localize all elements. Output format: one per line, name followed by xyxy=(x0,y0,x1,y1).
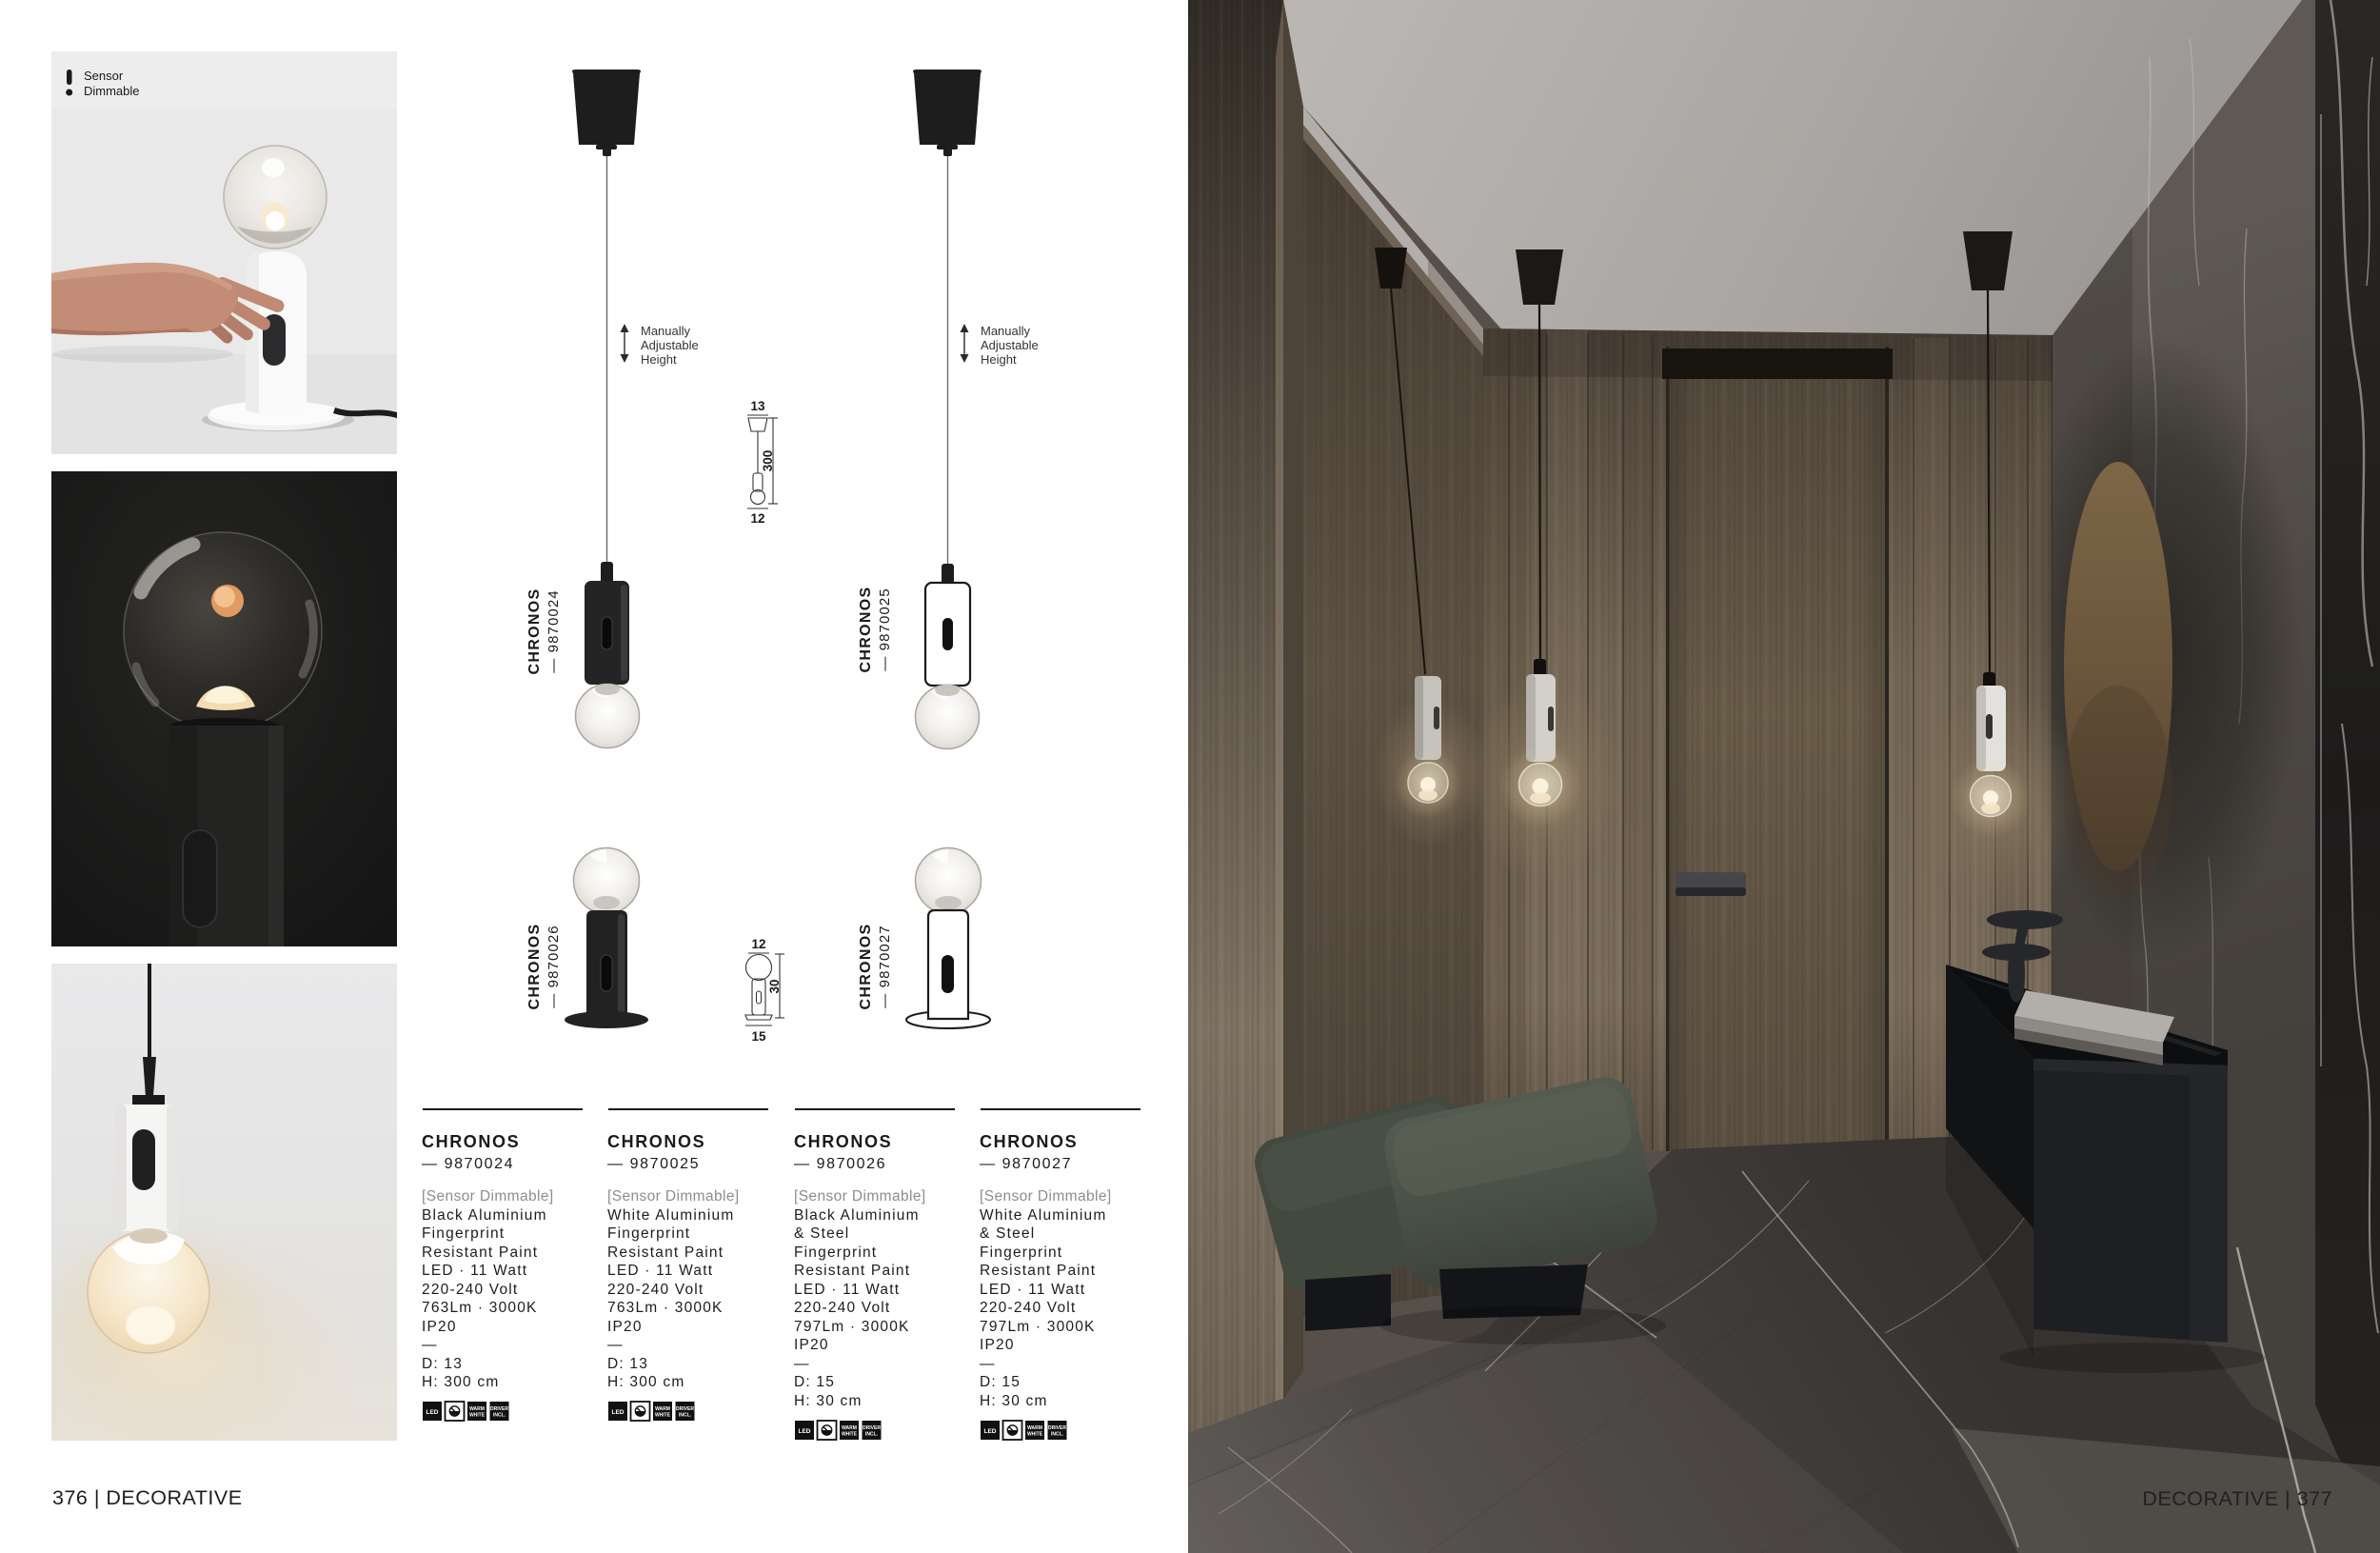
svg-text:White Aluminium: White Aluminium xyxy=(980,1207,1106,1224)
svg-text:WHITE: WHITE xyxy=(1027,1432,1043,1438)
svg-text:—: — xyxy=(422,1337,438,1353)
svg-text:INCL.: INCL. xyxy=(493,1413,506,1419)
svg-text:CHRONOS: CHRONOS xyxy=(526,924,543,1010)
svg-text:DECORATIVE | 377: DECORATIVE | 377 xyxy=(2142,1487,2332,1510)
svg-text:DRIVER: DRIVER xyxy=(490,1406,508,1412)
svg-text:Manually: Manually xyxy=(641,324,691,338)
svg-text:H: 300 cm: H: 300 cm xyxy=(607,1374,684,1390)
svg-text:Manually: Manually xyxy=(981,324,1031,338)
svg-text:LED · 11 Watt: LED · 11 Watt xyxy=(794,1282,900,1298)
svg-text:12: 12 xyxy=(750,511,764,526)
svg-text:— 9870024: — 9870024 xyxy=(545,589,562,672)
svg-text:CHRONOS: CHRONOS xyxy=(607,1132,705,1151)
svg-text:CHRONOS: CHRONOS xyxy=(794,1132,892,1151)
svg-text:13: 13 xyxy=(750,399,765,413)
svg-text:30: 30 xyxy=(767,979,782,993)
svg-text:H: 300 cm: H: 300 cm xyxy=(422,1374,499,1390)
svg-text:— 9870027: — 9870027 xyxy=(877,925,893,1007)
svg-text:— 9870025: — 9870025 xyxy=(607,1156,700,1172)
svg-text:White Aluminium: White Aluminium xyxy=(607,1207,734,1224)
svg-text:H: 30 cm: H: 30 cm xyxy=(980,1393,1048,1409)
svg-text:Resistant Paint: Resistant Paint xyxy=(607,1244,724,1261)
svg-text:& Steel: & Steel xyxy=(794,1225,849,1242)
svg-text:DRIVER: DRIVER xyxy=(863,1425,881,1431)
svg-text:Adjustable: Adjustable xyxy=(641,338,699,352)
svg-text:LED · 11 Watt: LED · 11 Watt xyxy=(980,1282,1085,1298)
svg-text:IP20: IP20 xyxy=(980,1337,1015,1353)
svg-text:Resistant Paint: Resistant Paint xyxy=(422,1244,538,1261)
svg-text:Height: Height xyxy=(981,352,1017,367)
svg-text:WARM: WARM xyxy=(842,1425,857,1431)
svg-text:LED: LED xyxy=(426,1409,439,1416)
svg-text:— 9870025: — 9870025 xyxy=(877,587,893,670)
svg-text:763Lm · 3000K: 763Lm · 3000K xyxy=(422,1300,538,1316)
svg-text:CHRONOS: CHRONOS xyxy=(858,924,874,1010)
svg-text:Black Aluminium: Black Aluminium xyxy=(794,1207,920,1224)
svg-text:Fingerprint: Fingerprint xyxy=(794,1244,877,1261)
svg-text:Fingerprint: Fingerprint xyxy=(422,1225,505,1242)
svg-text:D: 15: D: 15 xyxy=(980,1374,1021,1390)
svg-text:LED · 11 Watt: LED · 11 Watt xyxy=(607,1263,713,1279)
svg-text:Fingerprint: Fingerprint xyxy=(980,1244,1062,1261)
svg-text:15: 15 xyxy=(751,1029,766,1044)
svg-text:220-240 Volt: 220-240 Volt xyxy=(607,1282,704,1298)
svg-text:[Sensor Dimmable]: [Sensor Dimmable] xyxy=(980,1188,1112,1205)
svg-text:Adjustable: Adjustable xyxy=(981,338,1039,352)
svg-text:IP20: IP20 xyxy=(422,1319,457,1335)
svg-text:LED: LED xyxy=(799,1428,811,1435)
svg-text:[Sensor Dimmable]: [Sensor Dimmable] xyxy=(607,1188,740,1205)
svg-text:WHITE: WHITE xyxy=(469,1413,486,1419)
svg-text:—: — xyxy=(794,1356,810,1372)
svg-text:IP20: IP20 xyxy=(607,1319,643,1335)
svg-text:—: — xyxy=(980,1356,996,1372)
svg-text:Black Aluminium: Black Aluminium xyxy=(422,1207,547,1224)
svg-text:Sensor: Sensor xyxy=(84,69,124,83)
svg-text:CHRONOS: CHRONOS xyxy=(858,587,874,673)
svg-text:— 9870026: — 9870026 xyxy=(545,925,562,1007)
svg-text:220-240 Volt: 220-240 Volt xyxy=(794,1300,890,1316)
svg-text:— 9870026: — 9870026 xyxy=(794,1156,886,1172)
svg-text:— 9870024: — 9870024 xyxy=(422,1156,514,1172)
svg-text:DRIVER: DRIVER xyxy=(1048,1425,1066,1431)
svg-text:300: 300 xyxy=(761,450,775,472)
svg-text:CHRONOS: CHRONOS xyxy=(980,1132,1078,1151)
svg-text:220-240 Volt: 220-240 Volt xyxy=(980,1300,1076,1316)
svg-text:INCL.: INCL. xyxy=(1051,1432,1064,1438)
svg-text:Resistant Paint: Resistant Paint xyxy=(980,1263,1096,1279)
svg-text:CHRONOS: CHRONOS xyxy=(422,1132,520,1151)
svg-text:LED: LED xyxy=(984,1428,997,1435)
svg-text:D: 13: D: 13 xyxy=(607,1356,648,1372)
svg-text:INCL.: INCL. xyxy=(679,1413,692,1419)
svg-text:—: — xyxy=(607,1337,624,1353)
svg-text:[Sensor Dimmable]: [Sensor Dimmable] xyxy=(422,1188,554,1205)
svg-text:Fingerprint: Fingerprint xyxy=(607,1225,690,1242)
svg-text:& Steel: & Steel xyxy=(980,1225,1035,1242)
svg-text:797Lm · 3000K: 797Lm · 3000K xyxy=(980,1319,1096,1335)
svg-text:DRIVER: DRIVER xyxy=(676,1406,694,1412)
svg-text:INCL.: INCL. xyxy=(865,1432,879,1438)
svg-text:WHITE: WHITE xyxy=(842,1432,858,1438)
svg-text:D: 13: D: 13 xyxy=(422,1356,463,1372)
svg-text:H: 30 cm: H: 30 cm xyxy=(794,1393,863,1409)
svg-text:WARM: WARM xyxy=(1027,1425,1042,1431)
svg-text:LED: LED xyxy=(612,1409,625,1416)
svg-text:[Sensor Dimmable]: [Sensor Dimmable] xyxy=(794,1188,926,1205)
svg-text:376 | DECORATIVE: 376 | DECORATIVE xyxy=(52,1486,243,1509)
svg-text:WARM: WARM xyxy=(469,1406,485,1412)
svg-text:Height: Height xyxy=(641,352,677,367)
svg-text:WARM: WARM xyxy=(655,1406,670,1412)
svg-text:IP20: IP20 xyxy=(794,1337,829,1353)
svg-text:CHRONOS: CHRONOS xyxy=(526,588,543,675)
svg-text:WHITE: WHITE xyxy=(655,1413,671,1419)
svg-text:797Lm · 3000K: 797Lm · 3000K xyxy=(794,1319,910,1335)
svg-text:Dimmable: Dimmable xyxy=(84,84,140,98)
svg-text:220-240 Volt: 220-240 Volt xyxy=(422,1282,518,1298)
svg-text:— 9870027: — 9870027 xyxy=(980,1156,1072,1172)
svg-text:LED · 11 Watt: LED · 11 Watt xyxy=(422,1263,527,1279)
svg-text:D: 15: D: 15 xyxy=(794,1374,835,1390)
svg-text:Resistant Paint: Resistant Paint xyxy=(794,1263,910,1279)
svg-text:12: 12 xyxy=(751,937,765,951)
svg-text:763Lm · 3000K: 763Lm · 3000K xyxy=(607,1300,724,1316)
